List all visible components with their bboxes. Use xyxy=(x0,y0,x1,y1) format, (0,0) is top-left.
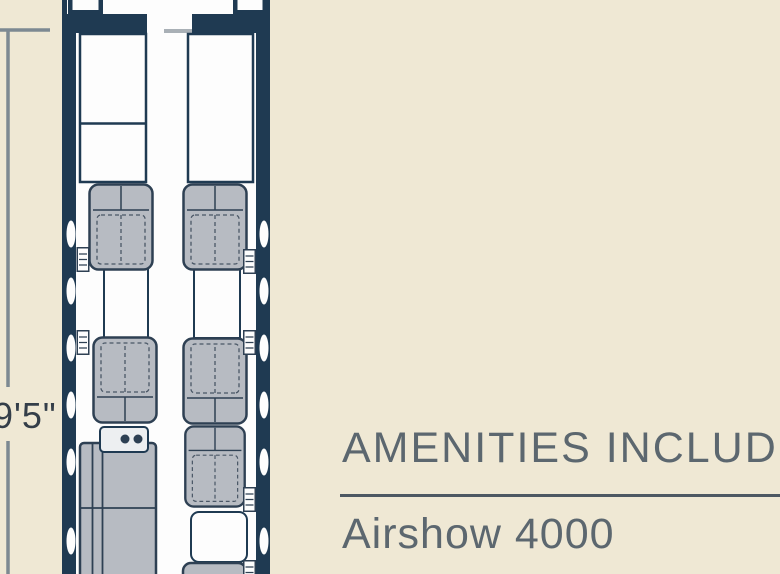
forward-closet-right xyxy=(188,34,253,182)
aft-side-table xyxy=(191,512,247,562)
forward-closet-left xyxy=(80,34,146,182)
brochure-panel: 9'5" AMENITIES INCLUDE Airshow 4000 xyxy=(0,0,780,574)
dimension-label: 9'5" xyxy=(0,395,57,437)
club-seat-6-partial xyxy=(183,563,246,574)
club-seat-5 xyxy=(185,426,244,506)
club-seat-1 xyxy=(90,185,153,270)
cockpit-doorway xyxy=(147,14,192,33)
cupholder xyxy=(121,435,130,444)
aircraft-floorplan xyxy=(0,0,780,574)
club-seat-2 xyxy=(184,185,247,270)
cupholder xyxy=(134,435,143,444)
club-seat-4 xyxy=(184,339,247,424)
amenities-divider xyxy=(340,494,780,497)
amenities-heading: AMENITIES INCLUDE xyxy=(342,427,780,470)
side-cabinet xyxy=(100,427,148,452)
club-seat-3 xyxy=(94,338,157,423)
amenities-item: Airshow 4000 xyxy=(342,513,615,556)
divan xyxy=(80,443,156,574)
dimension-line xyxy=(0,30,50,574)
